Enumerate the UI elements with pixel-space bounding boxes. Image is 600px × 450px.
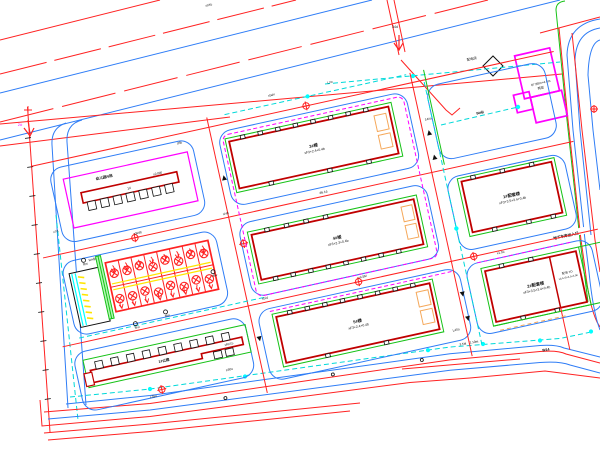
svg-text:d3b: d3b [177, 140, 183, 145]
svg-text:1.10m: 1.10m [469, 339, 479, 344]
svg-text:14#o: 14#o [424, 116, 432, 121]
svg-text:L35o: L35o [150, 394, 158, 399]
svg-text:2#: 2# [18, 122, 23, 127]
svg-text:W14: W14 [542, 348, 550, 353]
svg-text:L40o: L40o [452, 327, 460, 332]
svg-text:x4.5M: x4.5M [358, 274, 368, 280]
svg-text:34d: 34d [392, 25, 398, 29]
svg-text:xbXb: xbXb [205, 2, 213, 8]
svg-text:L60o: L60o [225, 367, 233, 372]
svg-text:幼儿园/6班: 幼儿园/6班 [95, 173, 113, 182]
svg-text:L#o: L#o [327, 80, 333, 85]
svg-text:xW4b: xW4b [134, 230, 143, 236]
svg-text:xbd#: xbd# [268, 92, 276, 97]
svg-text:3.5M: 3.5M [459, 342, 467, 347]
svg-text:x1.0o: x1.0o [496, 250, 505, 256]
svg-text:d6.1d: d6.1d [319, 189, 328, 195]
svg-text:xb/d: xb/d [262, 296, 269, 301]
svg-text:配电房: 配电房 [466, 55, 478, 62]
